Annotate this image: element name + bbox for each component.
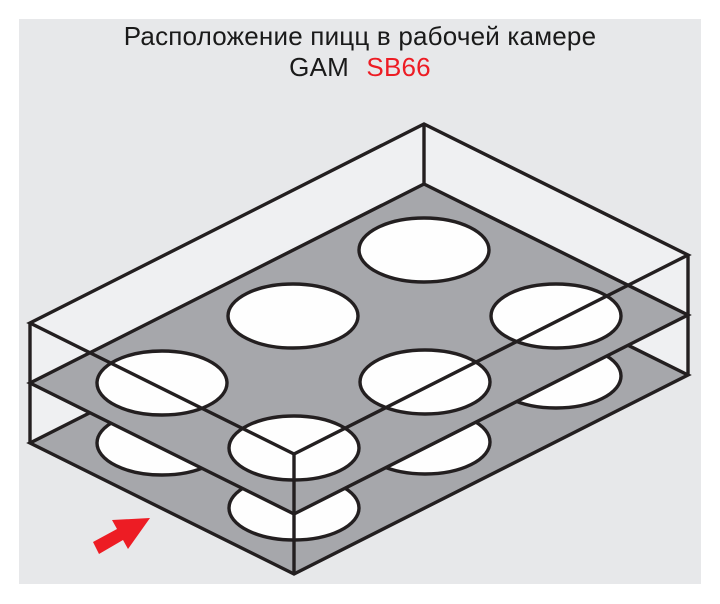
figure: Расположение пицц в рабочей камере GAM S… (0, 0, 720, 604)
pizza (228, 284, 358, 348)
diagram-svg: Расположение пицц в рабочей камере GAM S… (0, 0, 720, 604)
title-line1: Расположение пицц в рабочей камере (124, 21, 597, 51)
model-prefix: GAM (289, 52, 349, 82)
pizza (97, 351, 227, 415)
pizza (359, 218, 489, 282)
pizza (360, 350, 490, 414)
model-number: SB66 (366, 52, 430, 82)
pizza (491, 284, 621, 348)
